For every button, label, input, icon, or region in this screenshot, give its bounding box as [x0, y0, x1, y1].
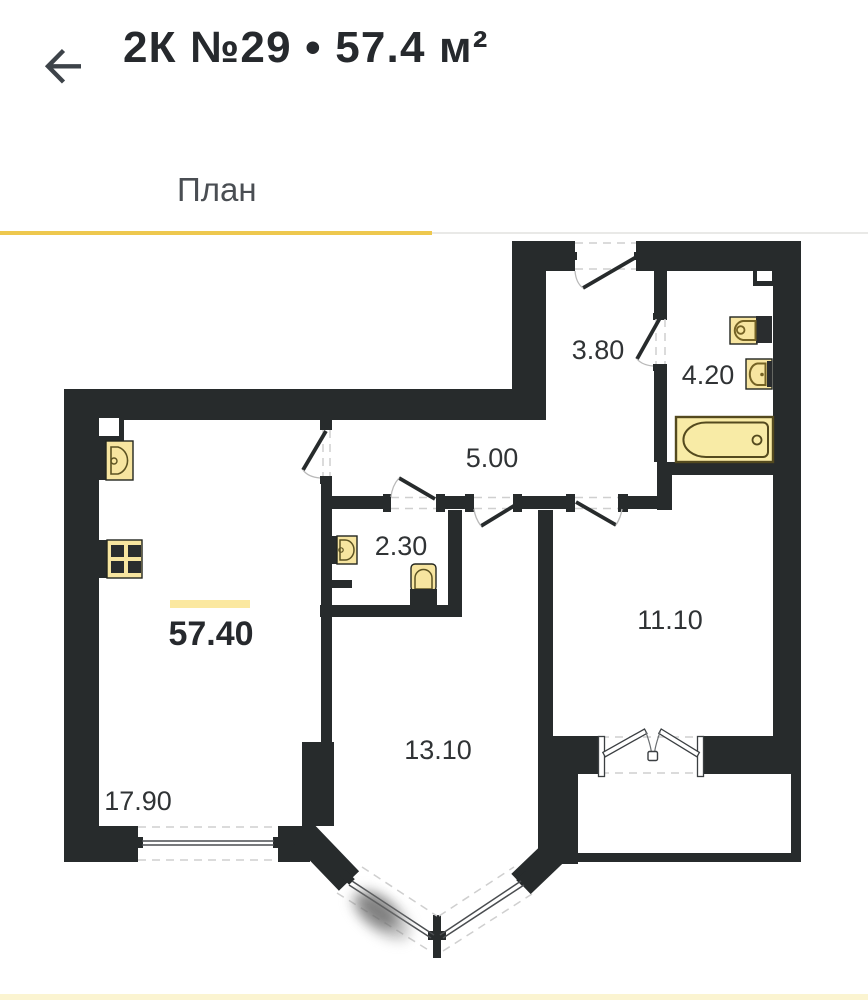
svg-text:2.30: 2.30: [375, 531, 428, 561]
svg-text:5.00: 5.00: [466, 443, 519, 473]
svg-text:3.80: 3.80: [572, 335, 625, 365]
svg-text:13.10: 13.10: [404, 735, 472, 765]
svg-text:17.90: 17.90: [104, 786, 172, 816]
svg-text:57.40: 57.40: [168, 615, 253, 653]
svg-text:11.10: 11.10: [637, 605, 703, 635]
svg-text:4.20: 4.20: [682, 360, 735, 390]
